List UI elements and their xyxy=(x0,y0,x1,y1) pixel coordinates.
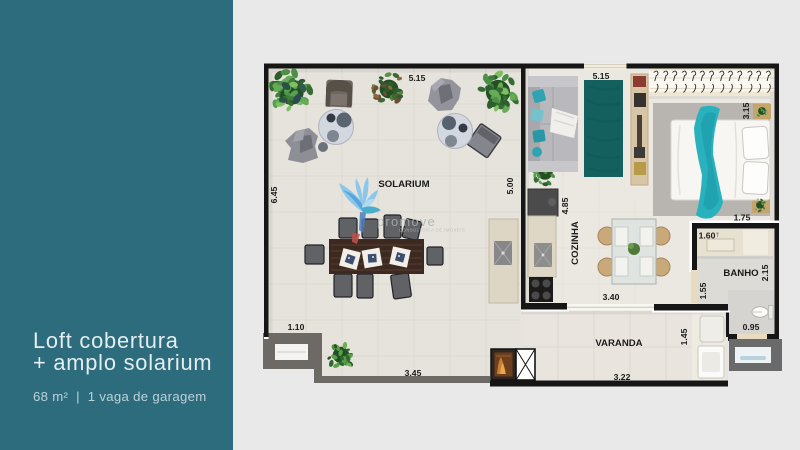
svg-text:1.10: 1.10 xyxy=(288,322,305,332)
svg-text:BANHO: BANHO xyxy=(723,268,759,279)
svg-text:SOLARIUM: SOLARIUM xyxy=(378,179,429,190)
svg-text:VARANDA: VARANDA xyxy=(595,338,642,349)
svg-text:1.60: 1.60 xyxy=(699,231,716,241)
svg-text:3.15: 3.15 xyxy=(741,102,751,119)
svg-text:3.45: 3.45 xyxy=(405,368,422,378)
svg-text:3.40: 3.40 xyxy=(603,292,620,302)
svg-text:3.22: 3.22 xyxy=(614,372,631,382)
svg-text:1.45: 1.45 xyxy=(679,328,689,345)
svg-text:2.15: 2.15 xyxy=(760,264,770,281)
svg-text:5.00: 5.00 xyxy=(505,177,515,194)
svg-text:4.85: 4.85 xyxy=(560,197,570,214)
svg-text:5.15: 5.15 xyxy=(409,73,426,83)
svg-text:COZINHA: COZINHA xyxy=(570,221,581,265)
svg-text:6.45: 6.45 xyxy=(269,186,279,203)
svg-text:1.75: 1.75 xyxy=(734,213,751,223)
svg-text:1.55: 1.55 xyxy=(698,282,708,299)
svg-text:CONSULTORIA DE IMOVEIS: CONSULTORIA DE IMOVEIS xyxy=(399,228,465,233)
svg-text:0.95: 0.95 xyxy=(743,322,760,332)
svg-text:5.15: 5.15 xyxy=(593,71,610,81)
